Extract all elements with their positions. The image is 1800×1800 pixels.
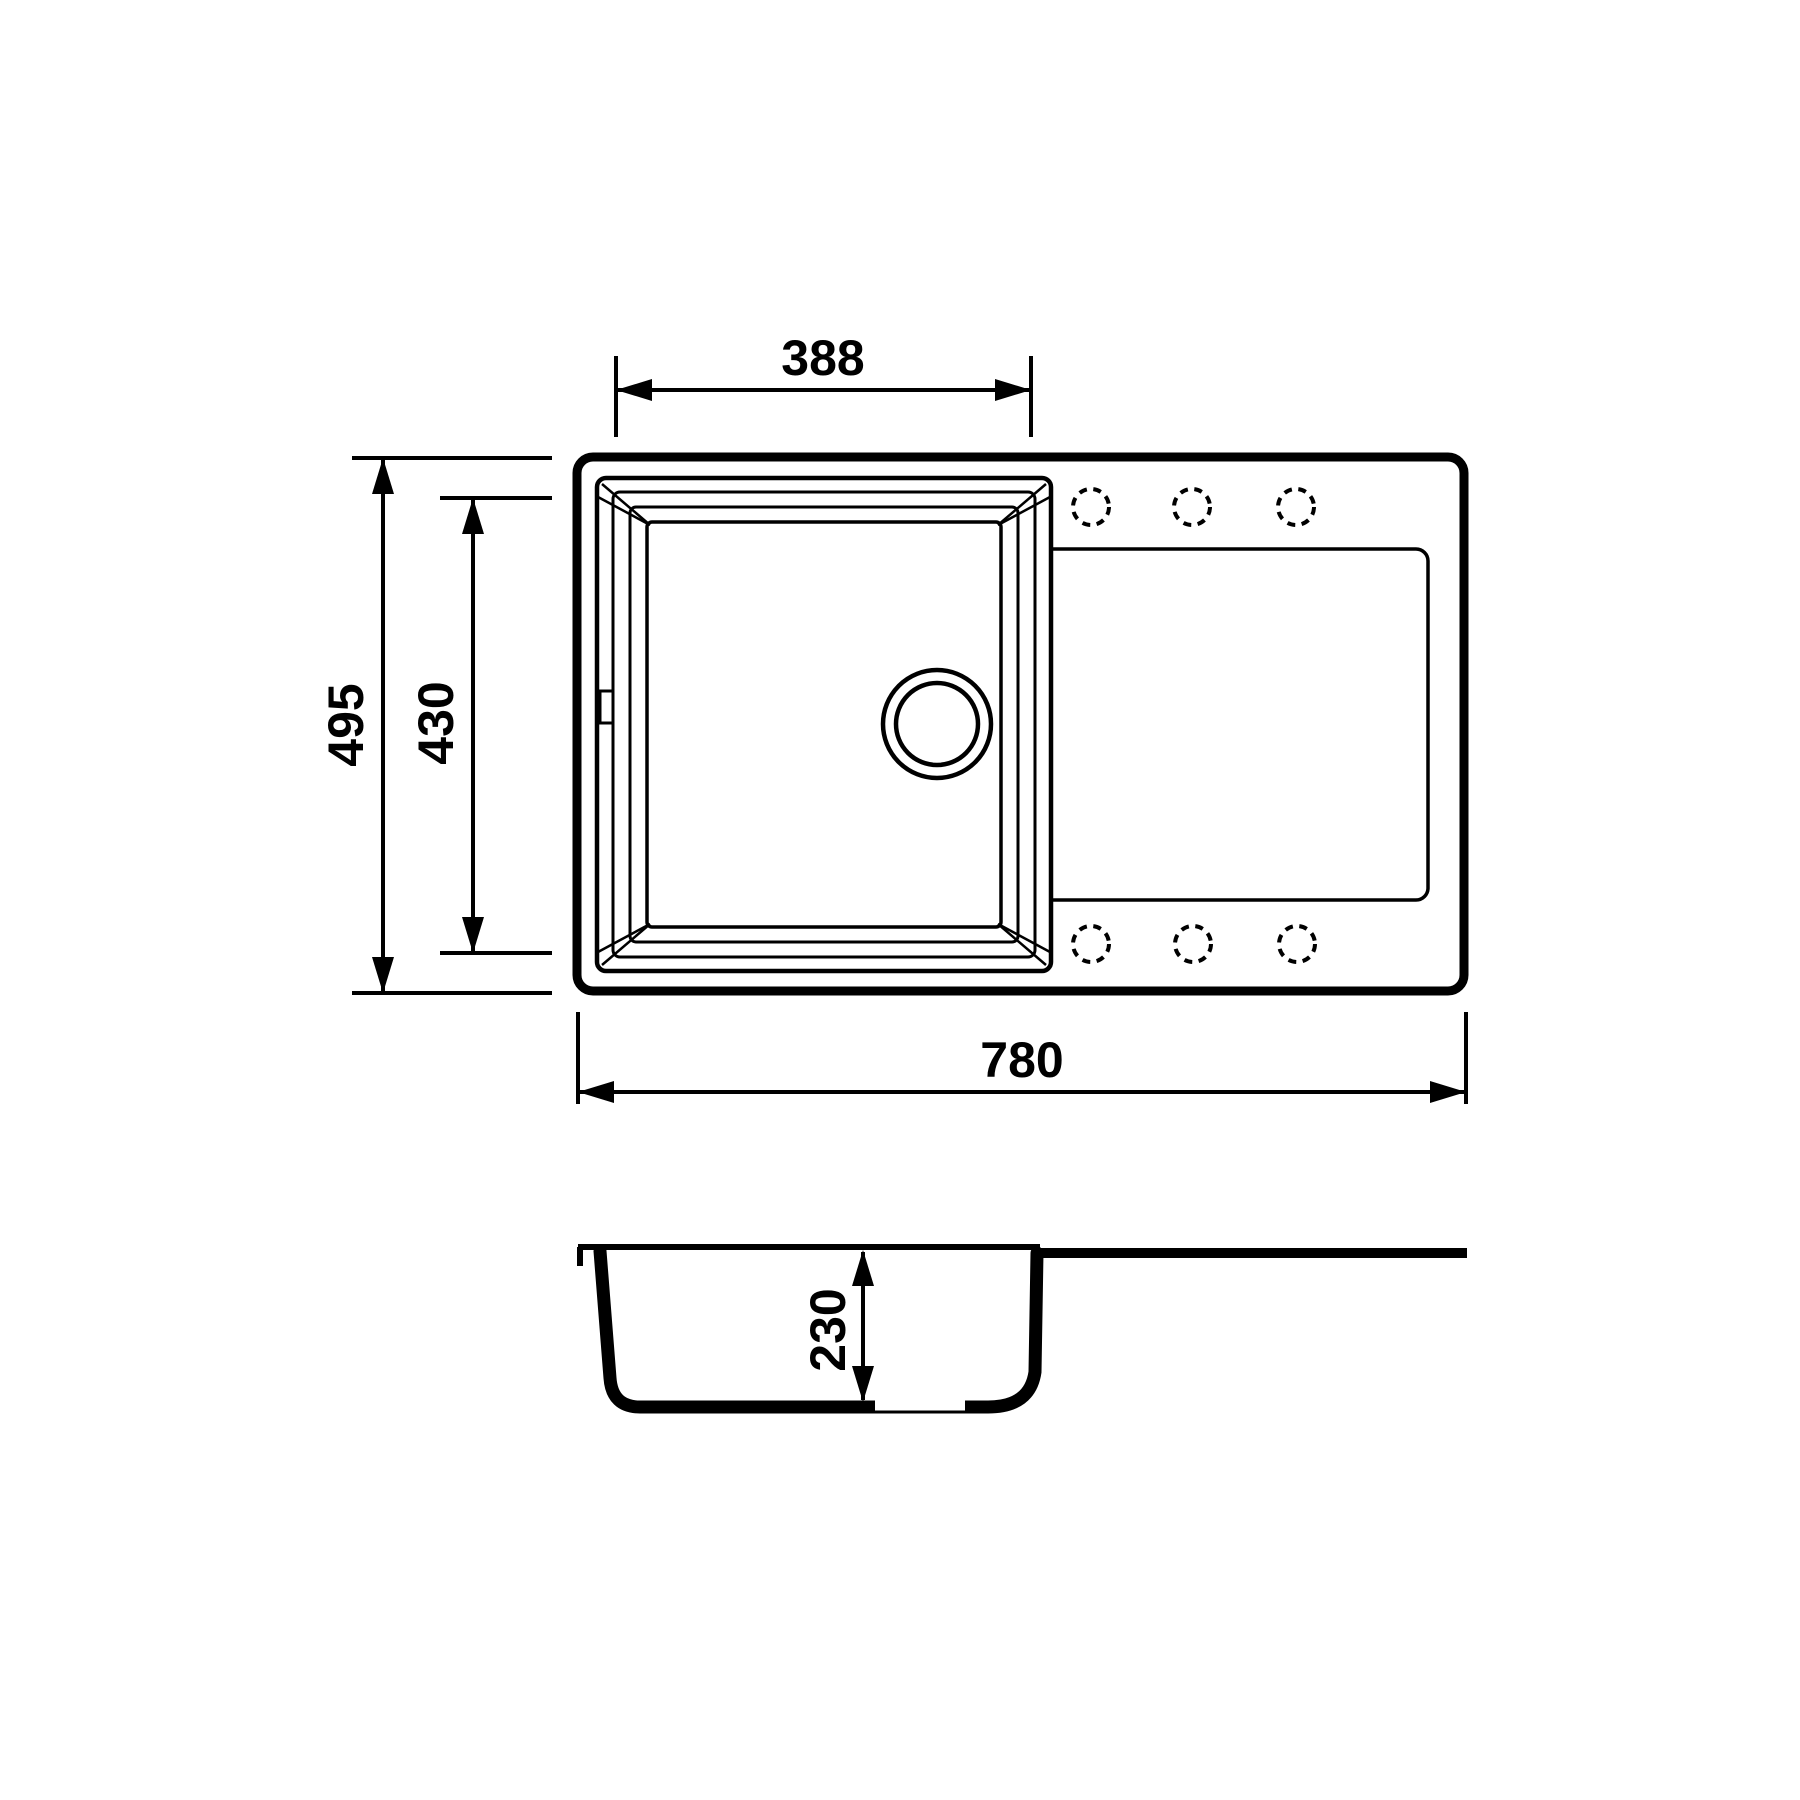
overflow-notch xyxy=(600,691,613,723)
dimension-label-230: 230 xyxy=(800,1288,856,1371)
top-view: 388 495 430 780 xyxy=(318,330,1466,1104)
bowl-corner-bevels xyxy=(598,484,1050,965)
drainboard-outline xyxy=(1051,549,1428,900)
tap-hole-bottom-3 xyxy=(1279,926,1315,962)
drain-outer-ring xyxy=(883,670,991,778)
tap-hole-bottom-1 xyxy=(1073,926,1109,962)
sink-dimension-drawing: 388 495 430 780 xyxy=(0,0,1800,1800)
arrowhead-top xyxy=(372,458,394,494)
arrowhead-bottom xyxy=(372,957,394,993)
dimension-bowl-height: 230 xyxy=(800,1250,874,1402)
bowl-rim-mid1 xyxy=(613,492,1035,957)
arrowhead-left xyxy=(616,379,652,401)
dimension-bowl-width: 388 xyxy=(616,330,1031,437)
dimension-label-780: 780 xyxy=(980,1032,1063,1088)
tap-hole-markers xyxy=(1073,489,1315,962)
tap-hole-top-1 xyxy=(1073,489,1109,525)
tap-hole-top-3 xyxy=(1278,489,1314,525)
drawing-canvas: 388 495 430 780 xyxy=(0,0,1800,1800)
drain-circle xyxy=(883,670,991,778)
bowl-inner-edge xyxy=(647,522,1001,927)
dimension-overall-width: 780 xyxy=(578,1012,1466,1104)
arrowhead-left xyxy=(578,1081,614,1103)
dimension-bowl-depth: 430 xyxy=(408,498,552,953)
dimension-label-495: 495 xyxy=(318,683,374,766)
section-view: 230 xyxy=(578,1247,1467,1412)
section-drain-recess-gap xyxy=(875,1396,965,1412)
dimension-label-430: 430 xyxy=(408,681,464,764)
bowl-rim-outer xyxy=(597,478,1051,971)
arrowhead-top xyxy=(462,498,484,534)
sink-outer-outline xyxy=(577,457,1464,991)
dimension-label-388: 388 xyxy=(781,330,864,386)
arrowhead-bottom xyxy=(462,917,484,953)
drain-inner-ring xyxy=(896,683,978,765)
bowl-rim-mid2 xyxy=(630,507,1018,942)
arrowhead-right xyxy=(995,379,1031,401)
arrowhead-top xyxy=(852,1250,874,1286)
arrowhead-right xyxy=(1430,1081,1466,1103)
tap-hole-bottom-2 xyxy=(1175,926,1211,962)
tap-hole-top-2 xyxy=(1174,489,1210,525)
